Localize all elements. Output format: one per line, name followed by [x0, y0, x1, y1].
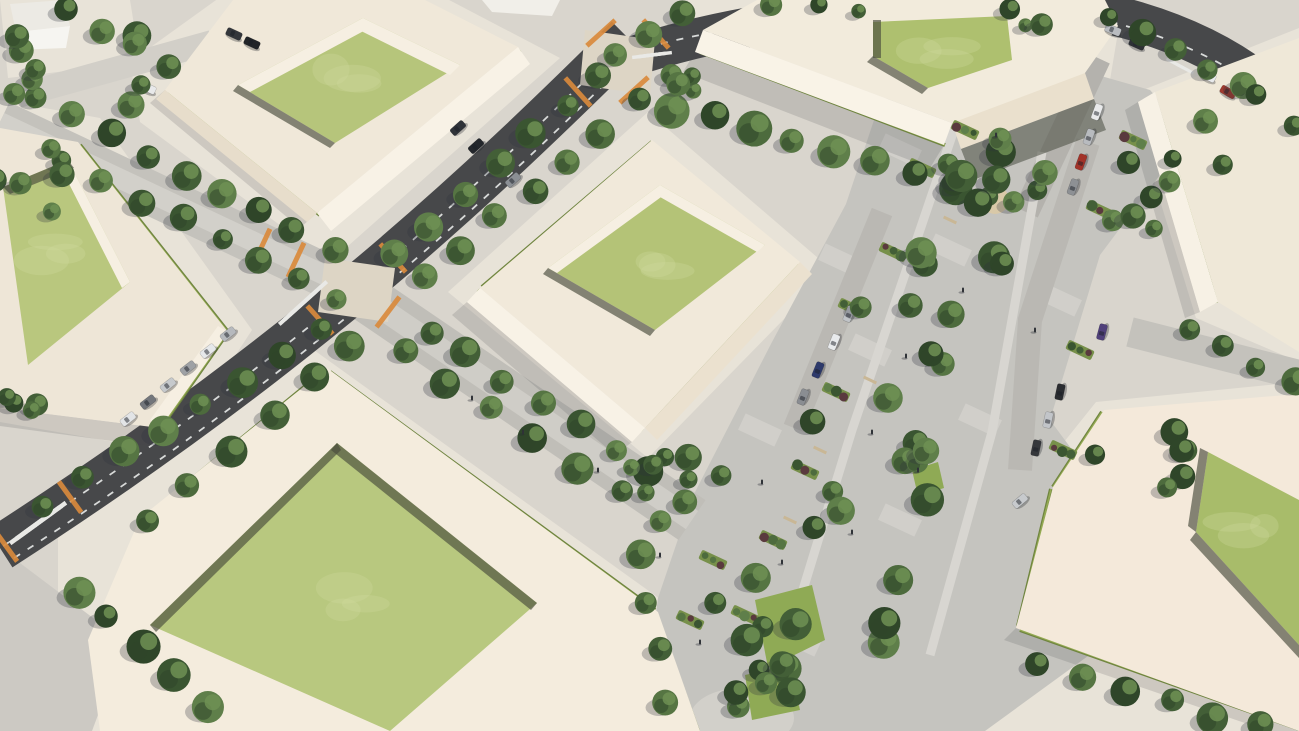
tree-canopy-light — [644, 486, 653, 495]
tree-canopy-light — [498, 151, 513, 166]
tree-canopy-light — [228, 439, 244, 455]
tree-canopy-light — [422, 266, 435, 279]
tree-canopy-light — [121, 439, 136, 454]
tree-canopy-light — [33, 89, 44, 100]
tree-canopy-light — [256, 200, 269, 213]
lawn-mottle — [14, 246, 69, 275]
tree-canopy-light — [104, 607, 116, 619]
tree-canopy-light — [789, 131, 801, 143]
tree-canopy-light — [680, 3, 693, 16]
tree-canopy-light — [663, 692, 676, 705]
tree-canopy-light — [527, 121, 542, 136]
tree-canopy-light — [59, 164, 72, 177]
tree-canopy-light — [663, 450, 672, 459]
tree-canopy-light — [463, 184, 476, 197]
tree-canopy-light — [658, 512, 669, 523]
tree-canopy-light — [139, 77, 149, 87]
tree-canopy-light — [132, 34, 144, 46]
tree-canopy-light — [205, 694, 221, 710]
pedestrian-body — [471, 396, 473, 401]
tree-canopy-light — [924, 486, 941, 503]
tree-canopy-light — [676, 74, 688, 86]
tree-canopy-light — [1000, 254, 1012, 266]
tree-canopy-light — [1171, 152, 1180, 161]
tree-canopy-light — [574, 456, 590, 472]
tree-canopy-light — [658, 639, 670, 651]
tree-canopy-light — [1254, 360, 1264, 370]
raised-crossing-mid — [318, 258, 395, 322]
tree-canopy-light — [885, 386, 900, 401]
tree-canopy-light — [219, 182, 234, 197]
tree-canopy-light — [109, 122, 123, 136]
lawn-mottle — [639, 253, 676, 277]
scene-canvas — [0, 0, 1299, 731]
pedestrian-body — [781, 560, 783, 565]
tree-canopy-light — [613, 45, 625, 57]
lawn-mottle — [326, 599, 361, 622]
tree-canopy-light — [792, 611, 808, 627]
tree-canopy-light — [426, 215, 441, 230]
tree-canopy-light — [184, 164, 199, 179]
tree-canopy-light — [1042, 163, 1055, 176]
lawn-mottle — [1218, 523, 1269, 548]
tree-canopy-light — [33, 61, 43, 71]
tree-canopy-light — [687, 472, 696, 481]
tree-canopy-light — [170, 662, 187, 679]
tree-canopy-light — [128, 94, 142, 108]
tree-canopy-light — [64, 0, 76, 11]
tree-canopy-light — [462, 340, 477, 355]
tree-canopy-light — [312, 365, 326, 379]
tree-canopy-light — [928, 344, 941, 357]
pedestrian-body — [761, 480, 763, 485]
tree-canopy-light — [99, 171, 111, 183]
tree-canopy-light — [272, 403, 287, 418]
tree-canopy-light — [713, 594, 724, 605]
tree-canopy-light — [15, 27, 27, 39]
pedestrian-body — [1034, 328, 1036, 333]
tree-canopy-light — [918, 240, 934, 256]
tree-canopy-light — [1221, 157, 1231, 167]
tree-canopy-light — [690, 69, 699, 78]
pedestrian-body — [871, 430, 873, 435]
tree-canopy-light — [1167, 173, 1178, 184]
tree-canopy-light — [256, 250, 269, 263]
tree-canopy-light — [998, 130, 1009, 141]
tree-canopy-light — [859, 299, 870, 310]
tree-canopy-light — [1188, 321, 1198, 331]
pedestrian-body — [962, 288, 964, 293]
tree-canopy-light — [734, 683, 746, 695]
tree-canopy-light — [1209, 705, 1225, 721]
block-d-court-wall-shadow — [873, 20, 881, 58]
tree-canopy-light — [140, 633, 157, 650]
pedestrian-body — [522, 430, 524, 435]
tree-canopy-light — [50, 204, 59, 213]
tree-canopy-light — [145, 512, 156, 523]
tree-canopy-light — [780, 654, 793, 667]
tree-canopy-light — [499, 372, 511, 384]
tree-canopy-light — [788, 680, 803, 695]
tree-canopy-light — [1035, 655, 1047, 667]
tree-canopy-light — [442, 372, 457, 387]
tree-canopy-light — [1205, 61, 1215, 71]
tree-canopy-light — [1180, 466, 1193, 479]
tree-canopy-light — [333, 240, 346, 253]
tree-canopy-light — [59, 153, 69, 163]
tree-canopy-light — [221, 231, 231, 241]
tree-canopy-light — [319, 321, 330, 332]
tree-canopy-light — [18, 174, 29, 185]
tree-canopy-light — [638, 542, 653, 557]
lawn-mottle — [312, 54, 349, 86]
tree-canopy-light — [1131, 206, 1144, 219]
tree-canopy-light — [239, 370, 254, 385]
tree-canopy-light — [614, 442, 624, 452]
tree-canopy-light — [958, 163, 974, 179]
tree-canopy-light — [1122, 680, 1137, 695]
tree-canopy-light — [630, 461, 638, 469]
tree-canopy-light — [692, 84, 700, 92]
tree-canopy-light — [1008, 1, 1018, 11]
tree-canopy-light — [712, 104, 726, 118]
tree-canopy-light — [682, 492, 694, 504]
tree-canopy-light — [719, 467, 729, 477]
tree-canopy-light — [761, 618, 772, 629]
tree-canopy-light — [686, 447, 700, 461]
pedestrian-body — [995, 133, 997, 138]
tree-canopy-light — [753, 566, 768, 581]
tree-canopy-light — [40, 498, 51, 509]
tree-canopy-light — [1173, 40, 1184, 51]
lawn-mottle — [923, 37, 980, 55]
tree-canopy-light — [297, 270, 308, 281]
tree-canopy-light — [1039, 15, 1050, 26]
tree-canopy-light — [100, 21, 113, 34]
tree-canopy-light — [565, 152, 578, 165]
tree-canopy-light — [1093, 447, 1103, 457]
tree-canopy-light — [744, 627, 760, 643]
tree-canopy-light — [146, 148, 158, 160]
tree-canopy-light — [895, 568, 910, 583]
tree-canopy-light — [908, 296, 920, 308]
tree-canopy-light — [566, 97, 577, 108]
tree-canopy-light — [198, 396, 209, 407]
tree-canopy-light — [810, 411, 823, 424]
tree-canopy-light — [881, 610, 897, 626]
tree-canopy-light — [831, 483, 842, 494]
tree-canopy-light — [620, 482, 631, 493]
tree-canopy-light — [334, 291, 344, 301]
tree-canopy-light — [1012, 193, 1023, 204]
tree-canopy-light — [1170, 691, 1181, 702]
tree-canopy-light — [1152, 221, 1161, 230]
tree-canopy-light — [492, 206, 504, 218]
tree-canopy-light — [80, 468, 91, 479]
tree-canopy-light — [30, 403, 39, 412]
lawn-mottle — [28, 234, 83, 251]
tree-canopy-light — [923, 440, 936, 453]
tree-canopy-light — [181, 207, 195, 221]
tree-canopy-light — [279, 344, 293, 358]
tree-canopy-light — [12, 85, 23, 96]
tree-canopy-light — [1203, 111, 1215, 123]
pedestrian-body — [851, 530, 853, 535]
tree-canopy-light — [1179, 440, 1191, 452]
tree-canopy-light — [948, 303, 962, 317]
tree-canopy-light — [1107, 10, 1116, 19]
tree-canopy-light — [541, 393, 554, 406]
tree-canopy-light — [5, 390, 14, 399]
tree-canopy-light — [838, 499, 852, 513]
tree-canopy-light — [912, 163, 925, 176]
tree-canopy-light — [597, 122, 612, 137]
pedestrian-body — [917, 468, 919, 473]
tree-canopy-light — [1140, 22, 1154, 36]
tree-canopy-light — [489, 398, 501, 410]
tree-canopy-light — [1126, 153, 1138, 165]
tree-canopy-light — [529, 426, 544, 441]
pedestrian-body — [905, 354, 907, 359]
tree-canopy-light — [830, 138, 847, 155]
tree-canopy-light — [1258, 714, 1271, 727]
masterplan-render-svg — [0, 0, 1299, 731]
tree-canopy-light — [76, 580, 92, 596]
tree-canopy-light — [751, 114, 769, 132]
tree-canopy-light — [578, 412, 592, 426]
tree-canopy-light — [872, 149, 887, 164]
tree-canopy-light — [391, 242, 405, 256]
tree-canopy-light — [1254, 86, 1264, 96]
tree-canopy-light — [857, 5, 864, 12]
tree-canopy-light — [166, 57, 178, 69]
tree-canopy-light — [458, 239, 472, 253]
tree-canopy-light — [160, 419, 175, 434]
pedestrian-body — [659, 553, 661, 558]
pedestrian-body — [597, 468, 599, 473]
tree-canopy-light — [289, 220, 302, 233]
tree-canopy-light — [651, 457, 661, 467]
tree-canopy-light — [403, 341, 416, 354]
tree-canopy-light — [637, 90, 648, 101]
tree-canopy-light — [346, 334, 361, 349]
tree-canopy-light — [139, 192, 153, 206]
tree-canopy-light — [1080, 666, 1094, 680]
tree-canopy-light — [644, 594, 655, 605]
tree-canopy-light — [49, 141, 59, 151]
tree-canopy-light — [1221, 337, 1232, 348]
tree-canopy-light — [69, 104, 82, 117]
tree-canopy-light — [993, 168, 1007, 182]
tree-canopy-light — [764, 674, 775, 685]
tree-canopy-light — [1172, 421, 1186, 435]
tree-canopy-light — [430, 324, 442, 336]
pedestrian-body — [699, 640, 701, 645]
tree-canopy-light — [533, 181, 546, 194]
tree-canopy-light — [1165, 479, 1175, 489]
tree-canopy-light — [812, 518, 824, 530]
tree-canopy-light — [646, 24, 660, 38]
tree-canopy-light — [184, 476, 196, 488]
